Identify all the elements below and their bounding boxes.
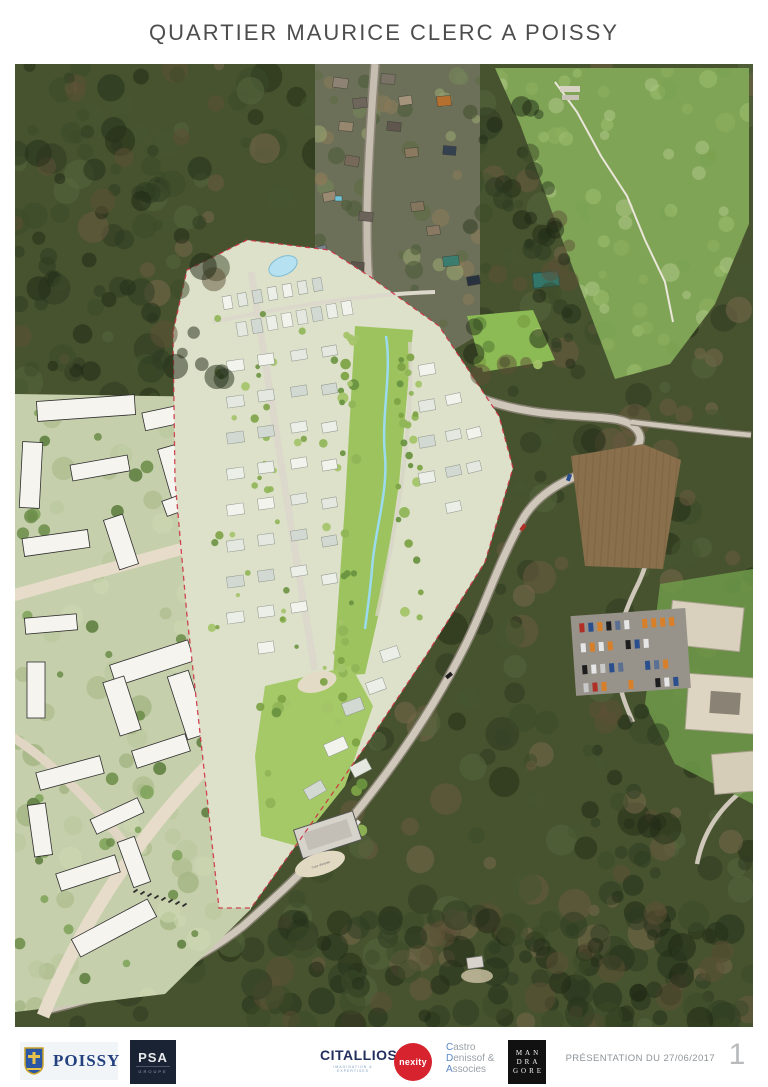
castro-line: Castro: [446, 1042, 494, 1053]
map-texture: [646, 982, 662, 998]
map-building: [628, 680, 634, 689]
map-texture: [699, 70, 717, 88]
map-texture: [87, 299, 104, 316]
map-texture: [551, 342, 562, 353]
map-texture: [520, 144, 539, 163]
presentation-date-label: PRÉSENTATION DU 27/06/2017: [560, 1053, 715, 1064]
map-texture: [508, 386, 519, 397]
mandragore-logo: MAN DRA GORE: [508, 1040, 546, 1084]
map-texture: [141, 461, 154, 474]
map-texture: [659, 382, 670, 393]
map-building: [290, 601, 307, 613]
map-texture: [489, 767, 519, 797]
map-texture: [188, 326, 200, 338]
map-texture: [679, 490, 695, 506]
map-building: [290, 421, 307, 433]
map-building: [582, 665, 588, 674]
map-texture: [525, 162, 543, 180]
map-texture: [410, 244, 421, 255]
map-texture: [517, 315, 530, 328]
map-texture: [170, 279, 190, 299]
map-texture: [192, 216, 206, 230]
map-texture: [505, 250, 516, 261]
map-building: [257, 497, 274, 510]
map-building: [618, 663, 624, 672]
map-texture: [265, 986, 293, 1014]
map-texture: [644, 902, 667, 925]
office-courtyard: [709, 691, 740, 715]
map-texture: [653, 1010, 668, 1025]
map-texture: [365, 950, 380, 965]
map-svg: Cour d'entrée: [15, 64, 753, 1027]
map-texture: [497, 355, 517, 375]
map-building: [226, 575, 244, 588]
map-texture: [280, 617, 285, 622]
map-texture: [526, 82, 539, 95]
map-texture: [82, 253, 97, 268]
map-texture: [281, 609, 286, 614]
map-texture: [597, 852, 615, 870]
map-texture: [32, 232, 45, 245]
map-texture: [400, 607, 410, 617]
poissy-logo: POISSY: [20, 1042, 118, 1080]
map-texture: [339, 400, 345, 406]
map-building: [601, 682, 607, 691]
map-texture: [368, 1008, 388, 1028]
map-building: [443, 255, 460, 267]
map-texture: [405, 261, 423, 279]
map-building: [615, 621, 621, 630]
map-texture: [129, 468, 143, 482]
map-building: [669, 617, 675, 626]
map-texture: [140, 785, 154, 799]
map-texture: [515, 200, 524, 209]
map-texture: [54, 173, 65, 184]
castro-denissof-logo: Castro Denissof & Associes: [446, 1042, 494, 1075]
map-texture: [191, 930, 198, 937]
map-texture: [351, 570, 357, 576]
map-texture: [588, 938, 604, 954]
map-texture: [119, 753, 134, 768]
map-building: [266, 315, 278, 331]
map-building: [580, 643, 586, 652]
map-building: [663, 659, 669, 668]
map-texture: [59, 847, 82, 870]
map-texture: [330, 96, 339, 105]
map-texture: [559, 132, 573, 146]
map-texture: [637, 814, 661, 838]
map-texture: [205, 365, 229, 389]
map-texture: [453, 999, 480, 1026]
map-texture: [256, 703, 264, 711]
map-texture: [453, 170, 463, 180]
map-texture: [404, 926, 427, 949]
map-texture: [442, 900, 472, 930]
map-texture: [555, 557, 569, 571]
map-texture: [559, 75, 571, 87]
psa-logo-text: PSA: [136, 1050, 170, 1067]
map-texture: [698, 856, 723, 881]
map-texture: [133, 1006, 149, 1022]
map-texture: [573, 69, 582, 78]
map-texture: [260, 311, 266, 317]
map-building: [645, 661, 651, 670]
map-texture: [541, 181, 555, 195]
map-texture: [664, 204, 677, 217]
map-building: [290, 529, 307, 541]
map-texture: [344, 570, 351, 577]
map-texture: [420, 947, 439, 966]
map-texture: [64, 924, 74, 934]
map-texture: [53, 276, 68, 291]
map-texture: [77, 109, 90, 122]
map-texture: [48, 361, 59, 372]
map-texture: [90, 189, 115, 214]
map-building: [609, 663, 615, 672]
map-texture: [610, 793, 628, 811]
map-texture: [504, 655, 527, 678]
citallios-logo-text: CITALLIOS: [320, 1047, 386, 1063]
map-texture: [61, 122, 82, 143]
map-texture: [520, 357, 532, 369]
map-texture: [347, 381, 353, 387]
map-texture: [413, 411, 419, 417]
map-texture: [106, 773, 119, 786]
map-building: [598, 642, 604, 651]
map-building: [353, 97, 368, 108]
map-texture: [133, 69, 149, 85]
map-building: [257, 533, 274, 546]
map-texture: [430, 783, 462, 815]
map-texture: [160, 607, 172, 619]
map-texture: [50, 501, 64, 515]
map-texture: [590, 818, 600, 828]
map-texture: [73, 324, 93, 344]
map-texture: [533, 938, 551, 956]
map-texture: [101, 117, 126, 142]
map-texture: [331, 356, 339, 364]
map-texture: [187, 928, 211, 952]
map-texture: [319, 439, 328, 448]
map-texture: [349, 600, 354, 605]
map-texture: [340, 359, 351, 370]
map-texture: [237, 77, 265, 105]
map-texture: [24, 362, 39, 377]
map-texture: [705, 349, 723, 367]
map-texture: [738, 856, 752, 870]
map-building: [437, 96, 452, 107]
map-texture: [40, 248, 57, 265]
map-texture: [338, 657, 345, 664]
map-building: [411, 201, 425, 211]
map-texture: [432, 209, 450, 227]
map-texture: [446, 131, 456, 141]
map-texture: [166, 255, 181, 270]
map-texture: [195, 357, 209, 371]
map-texture: [409, 436, 417, 444]
map-texture: [351, 664, 360, 673]
map-texture: [194, 856, 214, 876]
map-building: [257, 461, 274, 474]
map-texture: [177, 348, 188, 359]
map-texture: [28, 125, 38, 135]
map-texture: [337, 664, 346, 673]
map-building: [589, 642, 595, 651]
map-texture: [215, 625, 219, 629]
map-texture: [256, 373, 261, 378]
map-texture: [165, 828, 181, 844]
mandragore-line: MAN: [513, 1049, 541, 1058]
map-texture: [93, 578, 109, 594]
map-building: [588, 623, 594, 632]
map-texture: [173, 128, 190, 145]
psa-logo: PSA GROUPE: [130, 1040, 176, 1084]
map-texture: [520, 432, 541, 453]
map-texture: [231, 415, 237, 421]
map-texture: [716, 113, 736, 133]
map-texture: [308, 988, 335, 1015]
map-texture: [264, 486, 271, 493]
map-texture: [352, 738, 360, 746]
map-texture: [114, 230, 134, 250]
map-texture: [27, 276, 52, 301]
map-texture: [581, 212, 591, 222]
map-texture: [574, 837, 597, 860]
map-building: [251, 318, 263, 334]
map-texture: [159, 171, 186, 198]
map-texture: [417, 465, 423, 471]
map-texture: [397, 380, 404, 387]
map-texture: [626, 784, 641, 799]
map-texture: [288, 890, 306, 908]
map-texture: [448, 713, 466, 731]
map-texture: [40, 895, 48, 903]
page-title: QUARTIER MAURICE CLERC A POISSY: [0, 20, 768, 46]
map-texture: [439, 319, 447, 327]
map-texture: [396, 517, 402, 523]
map-texture: [404, 539, 413, 548]
map-texture: [546, 221, 564, 239]
map-texture: [463, 219, 478, 234]
map-texture: [272, 708, 282, 718]
map-texture: [549, 971, 571, 993]
map-texture: [328, 147, 345, 164]
map-texture: [251, 482, 258, 489]
map-texture: [593, 290, 609, 306]
map-texture: [341, 638, 349, 646]
map-texture: [97, 74, 124, 101]
map-texture: [177, 940, 186, 949]
map-texture: [399, 507, 410, 518]
map-texture: [677, 259, 690, 272]
map-texture: [546, 952, 568, 974]
map-texture: [81, 361, 101, 381]
map-texture: [647, 723, 669, 745]
map-texture: [553, 299, 568, 314]
map-texture: [459, 754, 486, 781]
map-texture: [417, 614, 423, 620]
map-texture: [56, 891, 74, 909]
map-building: [226, 539, 244, 552]
map-texture: [348, 401, 356, 409]
map-building: [311, 306, 323, 322]
map-texture: [147, 145, 159, 157]
map-building: [591, 664, 597, 673]
map-texture: [565, 359, 575, 369]
map-texture: [314, 172, 327, 185]
map-texture: [338, 620, 343, 625]
map-texture: [110, 164, 121, 175]
map-building: [607, 641, 613, 650]
map-texture: [77, 144, 93, 160]
map-building: [405, 147, 419, 157]
map-texture: [479, 135, 488, 144]
mandragore-line: GORE: [510, 1067, 544, 1076]
map-texture: [292, 911, 308, 927]
map-texture: [230, 532, 236, 538]
map-texture: [658, 333, 670, 345]
meadow-structure: [560, 86, 580, 92]
map-texture: [647, 929, 658, 940]
map-texture: [598, 235, 610, 247]
map-texture: [678, 901, 709, 932]
map-texture: [241, 382, 250, 391]
map-texture: [251, 414, 259, 422]
map-texture: [335, 718, 342, 725]
map-texture: [645, 78, 658, 91]
map-texture: [105, 651, 112, 658]
map-building: [673, 677, 679, 686]
map-texture: [513, 585, 535, 607]
map-building: [381, 74, 396, 85]
map-texture: [463, 294, 474, 305]
map-texture: [170, 67, 185, 82]
forest-house: [466, 956, 483, 969]
map-building: [655, 678, 661, 687]
map-texture: [189, 253, 216, 280]
map-texture: [398, 357, 404, 363]
map-texture: [607, 770, 622, 785]
map-building: [257, 425, 274, 438]
map-texture: [493, 189, 513, 209]
map-texture: [563, 240, 575, 252]
map-texture: [526, 761, 536, 771]
map-texture: [351, 454, 361, 464]
map-texture: [483, 341, 495, 353]
aerial-masterplan-map: Cour d'entrée: [15, 64, 753, 1027]
map-texture: [623, 875, 644, 896]
map-texture: [660, 399, 677, 416]
map-texture: [208, 624, 216, 632]
map-texture: [265, 770, 272, 777]
mandragore-line: DRA: [514, 1058, 541, 1067]
map-texture: [250, 133, 280, 163]
map-building: [597, 622, 603, 631]
map-texture: [215, 531, 223, 539]
map-texture: [378, 911, 402, 935]
map-building: [592, 682, 598, 691]
map-building: [583, 683, 589, 692]
map-building: [443, 145, 457, 155]
map-texture: [168, 890, 178, 900]
map-texture: [475, 204, 493, 222]
map-texture: [153, 762, 166, 775]
map-texture: [615, 846, 628, 859]
map-texture: [522, 100, 539, 117]
map-texture: [455, 691, 469, 705]
map-texture: [106, 838, 115, 847]
map-texture: [263, 404, 270, 411]
map-texture: [94, 433, 102, 441]
map-texture: [35, 297, 48, 310]
map-building: [237, 292, 248, 306]
map-texture: [120, 279, 136, 295]
map-texture: [487, 117, 503, 133]
map-texture: [211, 539, 218, 546]
map-texture: [340, 450, 346, 456]
map-texture: [726, 297, 752, 323]
map-texture: [496, 915, 528, 947]
map-texture: [634, 704, 649, 719]
presentation-slide: QUARTIER MAURICE CLERC A POISSY: [0, 0, 768, 1087]
map-texture: [663, 149, 674, 160]
map-texture: [320, 678, 328, 686]
map-texture: [38, 524, 50, 536]
map-building: [222, 295, 233, 309]
map-texture: [672, 946, 687, 961]
map-texture: [314, 234, 326, 246]
map-texture: [138, 356, 165, 383]
map-texture: [174, 228, 190, 244]
map-building: [290, 385, 307, 397]
map-texture: [208, 95, 225, 112]
parking-lot: [571, 608, 691, 696]
map-texture: [398, 413, 404, 419]
map-texture: [24, 509, 38, 523]
map-texture: [488, 984, 508, 1004]
map-texture: [135, 827, 142, 834]
map-texture: [397, 363, 405, 371]
map-texture: [301, 436, 307, 442]
map-texture: [140, 262, 155, 277]
map-texture: [725, 551, 740, 566]
map-texture: [407, 354, 415, 362]
castro-line: Denissof &: [446, 1053, 494, 1064]
map-texture: [469, 827, 485, 843]
map-texture: [66, 82, 85, 101]
map-texture: [323, 666, 327, 670]
map-texture: [538, 132, 549, 143]
map-building: [579, 623, 585, 632]
office-building: [711, 750, 753, 795]
map-building: [257, 569, 274, 582]
map-texture: [692, 166, 706, 180]
map-texture: [509, 704, 537, 732]
map-texture: [640, 321, 653, 334]
map-texture: [236, 593, 240, 597]
map-building: [387, 121, 402, 131]
map-texture: [356, 779, 367, 790]
map-building: [290, 565, 307, 577]
map-texture: [299, 328, 306, 335]
citallios-logo-tagline: IMAGINATION & EXPERTISES: [320, 1065, 386, 1073]
map-texture: [418, 589, 424, 595]
map-texture: [349, 337, 358, 346]
map-texture: [504, 683, 525, 704]
map-building: [236, 321, 248, 337]
map-building: [606, 621, 612, 630]
map-texture: [283, 587, 290, 594]
